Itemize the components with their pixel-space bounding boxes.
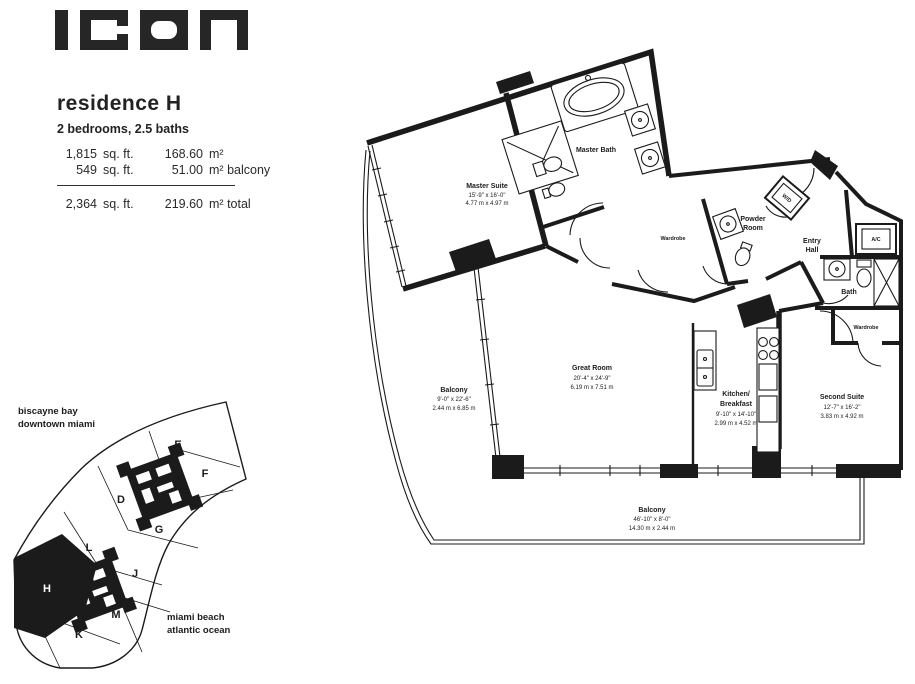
master-bath-label: Master Bath xyxy=(576,147,616,154)
svg-text:20'-4" x 24'-9": 20'-4" x 24'-9" xyxy=(574,376,611,382)
entry-hall-label: Entry xyxy=(803,238,821,245)
svg-text:M: M xyxy=(111,609,120,621)
svg-text:D: D xyxy=(117,494,125,506)
svg-text:F: F xyxy=(202,468,209,480)
second-suite-label: Second Suite xyxy=(820,394,864,401)
context-miami-beach: miami beach xyxy=(167,612,225,623)
refrigerator xyxy=(759,396,777,422)
floorplan-drawing: Master Suite 15'-9" x 16'-0" 4.77 m x 4.… xyxy=(0,0,915,684)
context-atlantic-ocean: atlantic ocean xyxy=(167,625,231,636)
bath-fixtures xyxy=(824,259,899,306)
svg-text:46'-10" x 8'-0": 46'-10" x 8'-0" xyxy=(634,517,671,523)
ac-label: A/C xyxy=(871,237,880,243)
svg-text:12'-7" x 16'-2": 12'-7" x 16'-2" xyxy=(824,405,861,411)
context-downtown-miami: downtown miami xyxy=(18,419,95,430)
svg-text:Breakfast: Breakfast xyxy=(720,401,753,408)
kitchen-sink xyxy=(697,350,713,386)
keyplan: E F D G L J H M K biscayne bay downtown … xyxy=(14,402,246,668)
svg-text:2.44 m x 6.85 m: 2.44 m x 6.85 m xyxy=(432,406,475,412)
toilet xyxy=(857,260,871,287)
master-suite-label: Master Suite xyxy=(466,183,508,190)
bath-label: Bath xyxy=(841,289,857,296)
svg-text:15'-9" x 16'-0": 15'-9" x 16'-0" xyxy=(469,193,506,199)
svg-text:9'-10" x 14'-10": 9'-10" x 14'-10" xyxy=(716,412,756,418)
wardrobe-label: Wardrobe xyxy=(854,325,879,331)
shower xyxy=(874,259,899,306)
sink xyxy=(635,142,666,174)
balcony-west-label: Balcony xyxy=(440,387,467,394)
context-biscayne-bay: biscayne bay xyxy=(18,406,78,417)
svg-text:14.30 m x 2.44 m: 14.30 m x 2.44 m xyxy=(629,526,675,532)
toilet xyxy=(733,241,754,267)
svg-text:G: G xyxy=(155,524,164,536)
svg-text:J: J xyxy=(132,568,138,580)
svg-text:E: E xyxy=(174,439,181,451)
svg-text:6.19 m x 7.51 m: 6.19 m x 7.51 m xyxy=(570,385,613,391)
wardrobe-label: Wardrobe xyxy=(661,236,686,242)
floorplan-page: { "brand": {"logo_text": "ICON"}, "heade… xyxy=(0,0,915,684)
svg-text:L: L xyxy=(86,542,93,554)
sink xyxy=(713,209,744,240)
balcony-south-label: Balcony xyxy=(638,507,665,514)
svg-text:Hall: Hall xyxy=(806,247,819,254)
svg-text:9'-0" x 22'-6": 9'-0" x 22'-6" xyxy=(437,397,471,403)
svg-text:3.83 m x 4.92 m: 3.83 m x 4.92 m xyxy=(820,414,863,420)
oven xyxy=(759,364,777,390)
svg-text:Room: Room xyxy=(743,225,763,232)
kitchen-fixtures xyxy=(694,328,779,452)
keyplan-letter-h: H xyxy=(43,583,51,595)
bathtub xyxy=(551,62,639,132)
powder-room-label: Powder xyxy=(740,216,766,223)
kitchen-label: Kitchen/ xyxy=(722,391,750,398)
great-room-label: Great Room xyxy=(572,365,612,372)
svg-text:4.77 m x 4.97 m: 4.77 m x 4.97 m xyxy=(465,201,508,207)
svg-text:K: K xyxy=(75,629,83,641)
svg-text:2.99 m x 4.52 m: 2.99 m x 4.52 m xyxy=(714,421,757,427)
